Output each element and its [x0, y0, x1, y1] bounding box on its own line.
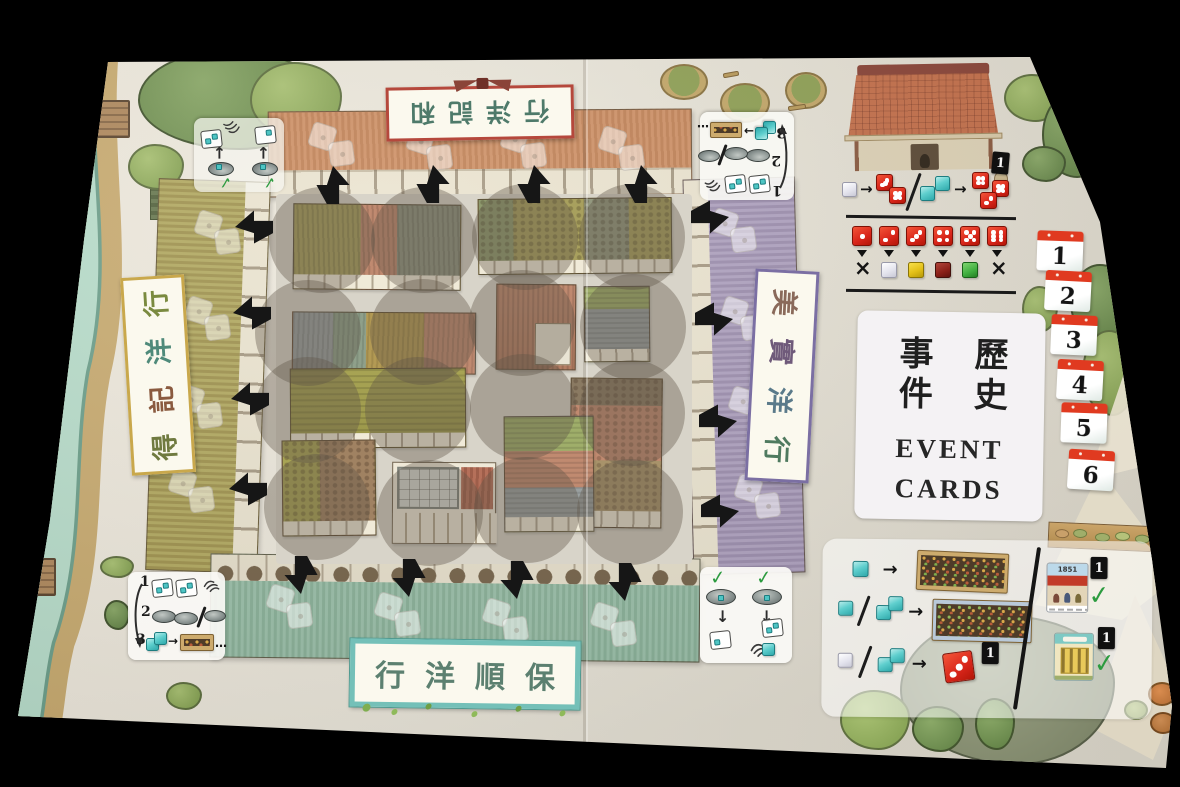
banner-char: 實 [763, 337, 803, 366]
banner-text: 行洋順保 [355, 650, 576, 697]
dice-slot-icon [592, 604, 644, 652]
cyan-cube-icon [890, 648, 905, 663]
slash-divider [858, 645, 873, 678]
disc-icon [698, 150, 720, 162]
disc-icon [724, 147, 748, 160]
step-number: 1 [140, 574, 150, 590]
round-tile: 3 [1050, 314, 1098, 356]
building-spot [470, 354, 576, 460]
dice-slot-icon [310, 124, 362, 172]
dice-slot-icon [376, 594, 428, 642]
dice-slot-icon [736, 476, 788, 524]
event-cards-area: 事件 歷史 EVENT CARDS [854, 310, 1046, 521]
step-number: 3 [136, 632, 146, 648]
shophouse-strip-icon [710, 122, 742, 138]
building-spot [371, 187, 477, 293]
step-number: 1 [772, 182, 782, 198]
step-number: 2 [141, 604, 151, 620]
die-box-icon [175, 578, 198, 598]
cross-mark: × [854, 256, 872, 280]
cyan-cube-icon [755, 127, 768, 140]
building-spot [474, 457, 580, 563]
ribbon-bow [454, 74, 510, 91]
banner-char: 洋 [761, 386, 801, 415]
disc-icon [746, 149, 770, 162]
green-cube-icon [962, 262, 978, 278]
check-icon: ✓ [755, 566, 773, 590]
slash-divider [857, 595, 871, 626]
white-cube-icon [842, 182, 857, 197]
event-zh-col-left: 事件 [888, 335, 938, 416]
marker-tile: 1 [982, 642, 999, 664]
building-spot [377, 460, 483, 566]
marker-value: 1 [1102, 631, 1111, 646]
down-arrow-icon: ↓ [716, 607, 729, 626]
tile-header [1061, 402, 1107, 414]
building-spot [264, 454, 370, 560]
divider-line [846, 289, 1016, 294]
red-die-icon [889, 187, 906, 204]
round-number: 6 [1067, 459, 1115, 492]
marker-tile: 1 [1098, 627, 1115, 649]
round-number: 3 [1050, 324, 1097, 356]
drying-tray [785, 72, 827, 109]
bush [166, 682, 202, 710]
shophouse-strip-card [932, 599, 1033, 644]
die-box-icon [761, 618, 784, 638]
hand-icon [202, 578, 222, 593]
die-box-icon [254, 125, 277, 145]
cyan-cube-icon [852, 561, 868, 577]
cyan-cube-icon [838, 601, 853, 616]
card-title: 1851 [1047, 564, 1087, 576]
basket [1055, 529, 1069, 539]
arrow-icon: → [908, 601, 923, 622]
round-tile: 4 [1056, 359, 1104, 401]
arrow-icon: → [912, 653, 927, 674]
round-tile: 6 [1067, 449, 1115, 492]
dice-slot-icon [268, 586, 320, 634]
bush [1022, 146, 1066, 182]
cyan-cube-icon [935, 176, 950, 191]
temple [839, 57, 1006, 172]
disc-icon [252, 162, 278, 176]
scoring-panel: → → → 1 1851 1 ✓ [821, 539, 1153, 720]
dice-slot-icon [196, 212, 248, 260]
shophouse-strip-card [916, 550, 1010, 594]
produce-basket [1150, 712, 1176, 734]
round-tile: 2 [1044, 270, 1092, 312]
round-tile: 5 [1060, 402, 1107, 444]
die-face-1 [852, 226, 872, 246]
pointer-triangle [911, 250, 921, 257]
building-spot [577, 459, 683, 565]
hand-icon [702, 179, 722, 194]
ellipsis: … [697, 122, 709, 136]
company-banner-south: 行洋順保 [350, 638, 581, 709]
die-box-icon [151, 578, 174, 598]
disc-action-card: ✓ ↓ ✓ ↓ [700, 567, 792, 663]
cyan-cube-icon [154, 632, 167, 645]
pointer-triangle [938, 250, 948, 257]
board-fold-highlight [586, 57, 588, 763]
history-card-1851: 1851 [1046, 563, 1088, 613]
event-title-en: CARDS [854, 472, 1043, 506]
red-die-icon [972, 172, 989, 189]
banner-char: 得 [142, 432, 183, 461]
banner-char: 記 [139, 384, 180, 413]
basket [1115, 531, 1130, 541]
red-die-icon [980, 192, 997, 209]
round-number: 4 [1056, 369, 1104, 401]
marker-tile: 1 [1090, 557, 1107, 579]
temple-figure [920, 154, 930, 168]
marker-tile: 1 [991, 151, 1010, 174]
disc-icon [174, 612, 198, 625]
company-banner-west: 行 洋 記 得 [120, 274, 196, 476]
company-banner-east: 美 實 洋 行 [744, 268, 819, 483]
shophouse-strip-icon [180, 634, 214, 651]
die-box-icon [748, 174, 771, 194]
produce-basket [1148, 682, 1176, 706]
disc-icon [204, 610, 226, 622]
event-title-zh: 事件 歷史 [856, 334, 1045, 417]
temple-wall [854, 139, 993, 171]
temple-roof [847, 73, 998, 138]
drying-tray [660, 64, 708, 100]
pointer-triangle [884, 250, 894, 257]
marker-value: 1 [986, 645, 995, 660]
cyan-cube-icon [762, 643, 775, 656]
banner-text: 行洋記和 [397, 94, 563, 133]
die-face-2 [879, 226, 899, 246]
building-spot [269, 187, 375, 293]
cyan-cube-icon [920, 186, 935, 201]
game-board: 1 [0, 0, 1180, 787]
arrow-icon: → [882, 559, 897, 580]
die-face-6 [987, 226, 1007, 246]
check-icon: ✓ [1092, 648, 1117, 680]
round-number: 2 [1044, 280, 1092, 312]
check-icon: ✓ [709, 566, 727, 590]
dice-slot-icon [186, 298, 238, 346]
temple-door [911, 144, 939, 170]
banner-char: 行 [758, 435, 798, 464]
die-box-icon [709, 630, 732, 650]
disc-action-card: ✓ ↓ ✓ ↓ [194, 118, 284, 192]
card-building [1055, 644, 1093, 681]
arrow-icon: → [744, 124, 754, 138]
arrow-icon: → [860, 180, 873, 198]
bush [104, 600, 130, 630]
building-spot [365, 357, 471, 463]
banner-char: 行 [133, 288, 174, 317]
die-face-3 [906, 226, 926, 246]
disc-icon [152, 610, 176, 623]
disc-icon [752, 589, 782, 605]
company-banner-north: 行洋記和 [386, 84, 575, 141]
round-tile: 1 [1036, 230, 1083, 272]
disc-icon [706, 589, 736, 605]
disc-icon [208, 162, 234, 176]
card-storefront [1047, 586, 1087, 606]
marker-value: 1 [1094, 560, 1103, 575]
round-number: 1 [1036, 240, 1083, 272]
arrow-icon: → [954, 180, 967, 198]
check-icon: ✓ [1087, 580, 1112, 612]
cross-mark: × [990, 256, 1008, 280]
banner-char: 洋 [136, 336, 177, 365]
die-box-icon [724, 174, 747, 194]
building-card [1054, 633, 1094, 681]
step-number: 2 [771, 152, 781, 168]
card-roof [1047, 576, 1087, 586]
yellow-cube-icon [908, 262, 924, 278]
red-die-icon [942, 650, 976, 684]
event-zh-col-right: 歷史 [963, 336, 1013, 417]
turn-order-card: 1 2 3 → … [700, 112, 794, 200]
event-title-en: EVENT [855, 432, 1044, 466]
pointer-triangle [965, 250, 975, 257]
banner-char: 美 [766, 288, 806, 317]
die-face-5 [960, 226, 980, 246]
step-number: 3 [776, 124, 786, 140]
building-spot [255, 357, 361, 463]
dice-slot-icon [170, 470, 222, 518]
dice-conversion-chart: → → × × [836, 168, 1026, 298]
hand-icon [220, 120, 242, 136]
bridge [22, 558, 56, 596]
basket [1073, 529, 1087, 539]
building-spot [579, 360, 685, 466]
bridge [96, 100, 130, 138]
tile-header [1037, 230, 1083, 242]
card-caption [1047, 606, 1087, 613]
tile-header [1051, 314, 1097, 326]
ellipsis: … [215, 636, 227, 650]
down-arrow-icon: ↓ [257, 143, 270, 162]
arrow-icon: → [168, 634, 178, 648]
white-cube-icon [838, 653, 853, 668]
divider-line [846, 215, 1016, 220]
cyan-cube-icon [888, 596, 903, 611]
dark-red-cube-icon [935, 262, 951, 278]
die-face-4 [933, 226, 953, 246]
turn-order-card: 1 2 3 → … [128, 572, 225, 660]
round-number: 5 [1060, 412, 1107, 444]
marker-value: 1 [995, 155, 1005, 171]
card-header [1055, 634, 1093, 644]
white-cube-icon [881, 262, 897, 278]
